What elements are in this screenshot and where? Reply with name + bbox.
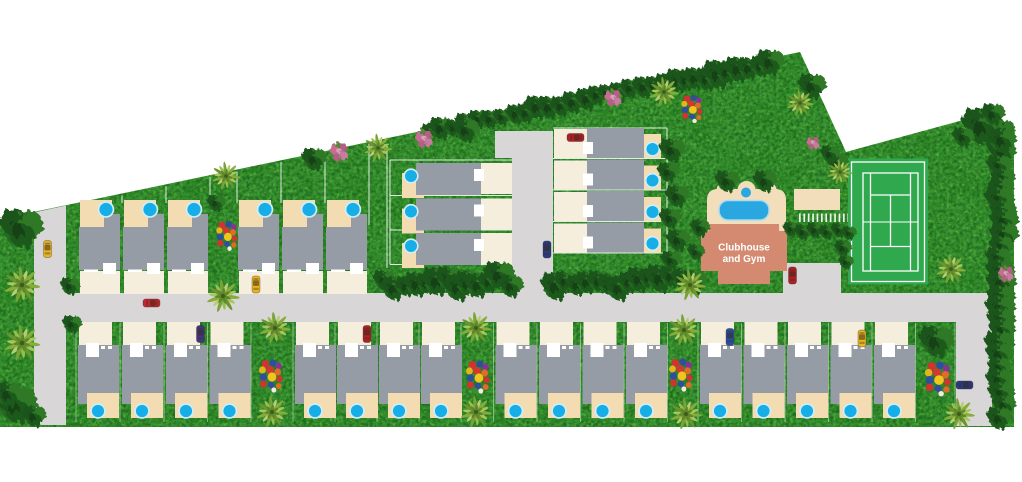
svg-text:Clubhouse: Clubhouse: [718, 243, 770, 254]
svg-text:and Gym: and Gym: [723, 254, 766, 265]
